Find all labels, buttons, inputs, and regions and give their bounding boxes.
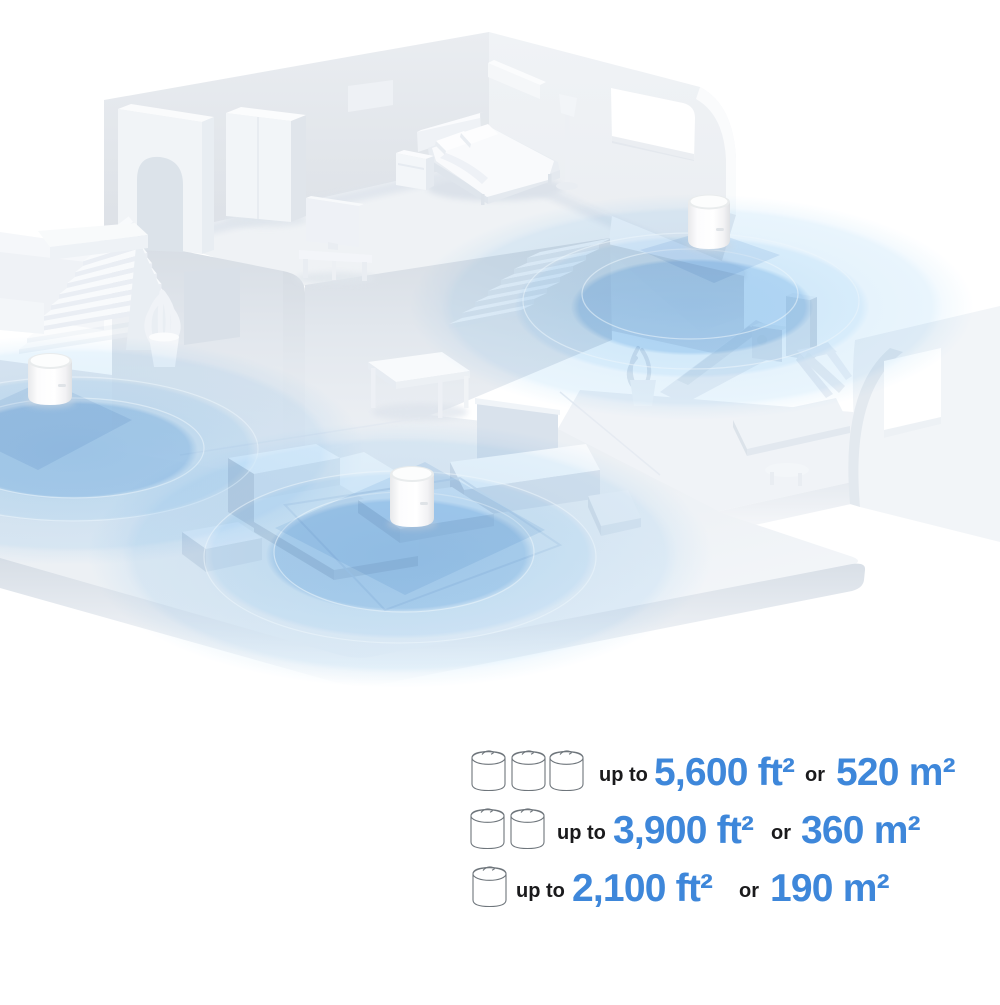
svg-text:or: or — [805, 764, 825, 786]
svg-text:or: or — [771, 822, 791, 844]
svg-text:5,600 ft²: 5,600 ft² — [654, 751, 795, 794]
svg-text:up to: up to — [599, 764, 648, 786]
svg-text:520 m²: 520 m² — [836, 751, 956, 794]
svg-text:360 m²: 360 m² — [801, 809, 921, 852]
svg-text:2,100 ft²: 2,100 ft² — [572, 867, 713, 910]
svg-text:up to: up to — [557, 822, 606, 844]
svg-text:or: or — [739, 880, 759, 902]
svg-text:3,900 ft²: 3,900 ft² — [613, 809, 754, 852]
svg-text:190 m²: 190 m² — [770, 867, 890, 910]
svg-text:up to: up to — [516, 880, 565, 902]
